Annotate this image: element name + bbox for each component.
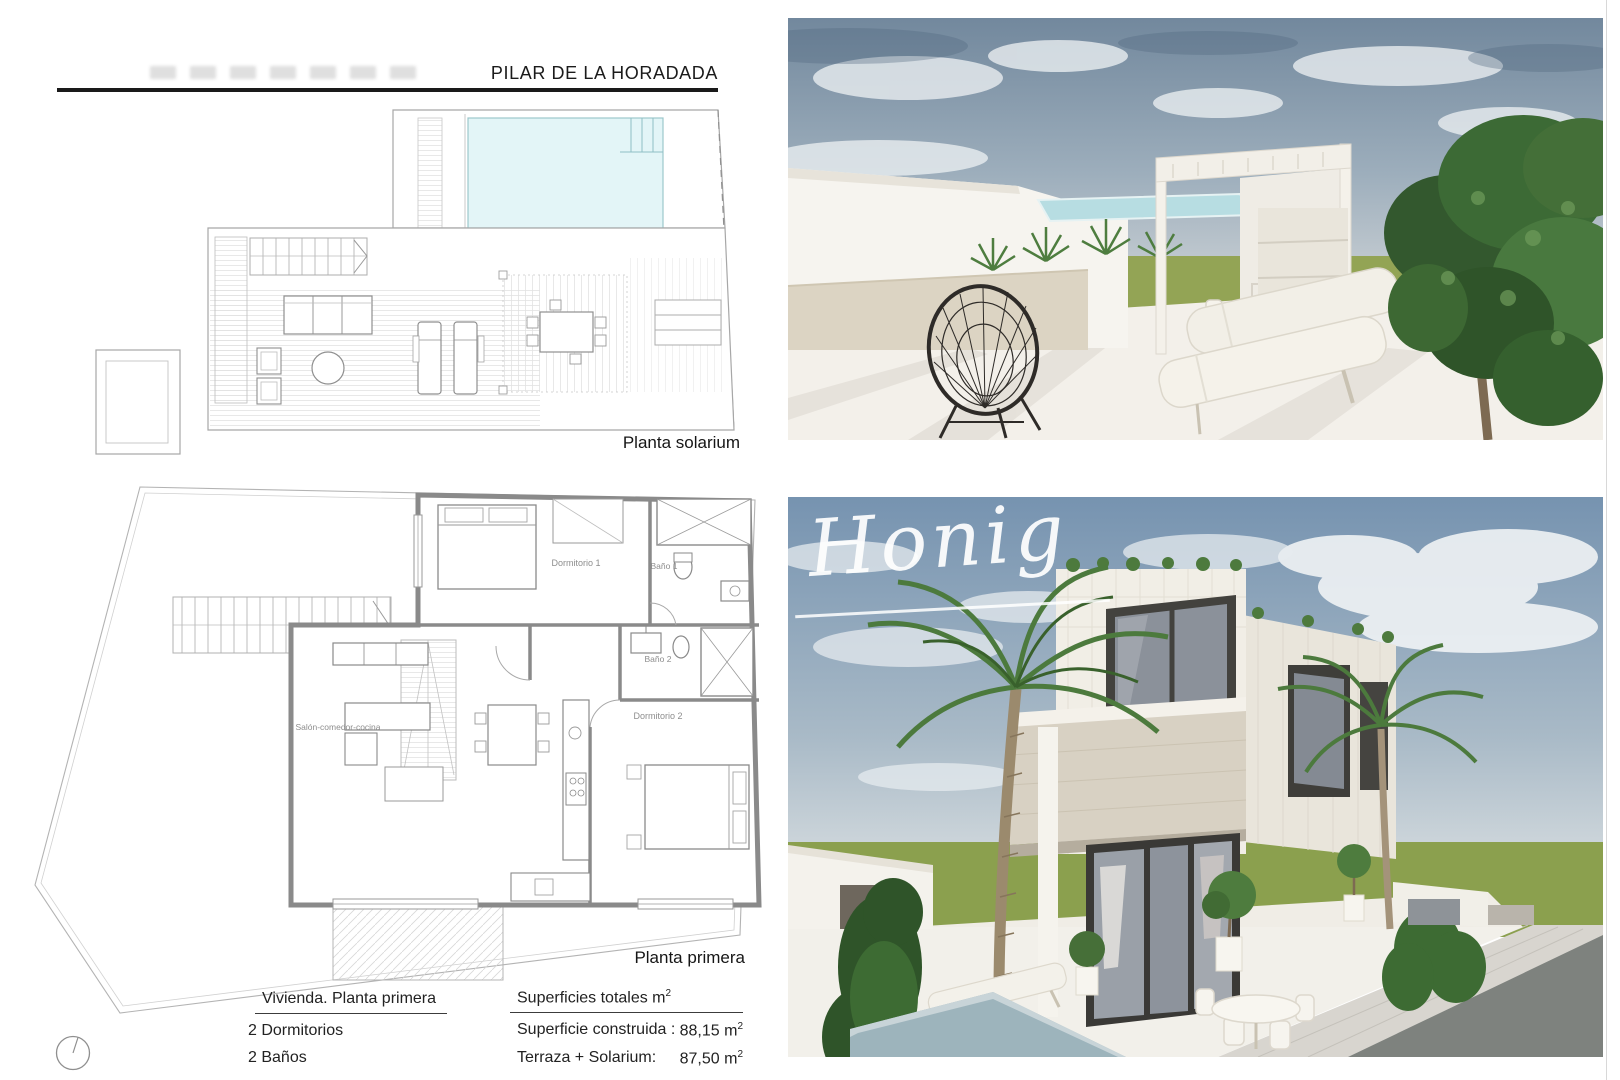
built-surface-value: 88,15 m2: [680, 1021, 743, 1040]
room-label-bano2: Baño 2: [630, 654, 686, 664]
room-label-dormitorio1: Dormitorio 1: [530, 558, 622, 568]
header-rule: [57, 88, 718, 92]
dwelling-heading: Vivienda. Planta primera: [255, 990, 447, 1014]
room-label-dormitorio2: Dormitorio 2: [608, 711, 708, 721]
built-surface-label: Superficie construida :: [517, 1021, 675, 1040]
render-photo-solarium: [788, 18, 1603, 440]
first-floor-plan-caption: Planta primera: [590, 948, 745, 968]
bedrooms-spec: 2 Dormitorios: [248, 1022, 343, 1040]
terrace-surface-label: Terraza + Solarium:: [517, 1049, 656, 1068]
surfaces-heading: Superficies totales m2: [510, 988, 743, 1013]
bathrooms-spec: 2 Baños: [248, 1049, 307, 1067]
room-label-salon: Salón-comedor-cocina: [283, 722, 393, 732]
room-label-bano1: Baño 1: [638, 561, 690, 571]
plan-sheet-page: PILAR DE LA HORADADA: [0, 0, 1620, 1080]
north-compass-icon: [50, 1030, 96, 1076]
solarium-plan-drawing: [88, 98, 748, 463]
terrace-surface-row: Terraza + Solarium: 87,50 m2: [517, 1049, 743, 1068]
page-edge-line: [1606, 0, 1607, 1080]
terrace-surface-value: 87,50 m2: [680, 1049, 743, 1068]
render-photo-villa: [788, 497, 1603, 1057]
page-title: PILAR DE LA HORADADA: [318, 63, 718, 84]
built-surface-row: Superficie construida : 88,15 m2: [517, 1021, 743, 1040]
solarium-floor-plan: [88, 98, 748, 463]
dwelling-heading-text: Vivienda. Planta primera: [255, 990, 447, 1014]
solarium-plan-caption: Planta solarium: [580, 433, 740, 453]
surfaces-heading-sup: 2: [666, 988, 672, 999]
surfaces-heading-text: Superficies totales m: [517, 989, 666, 1006]
